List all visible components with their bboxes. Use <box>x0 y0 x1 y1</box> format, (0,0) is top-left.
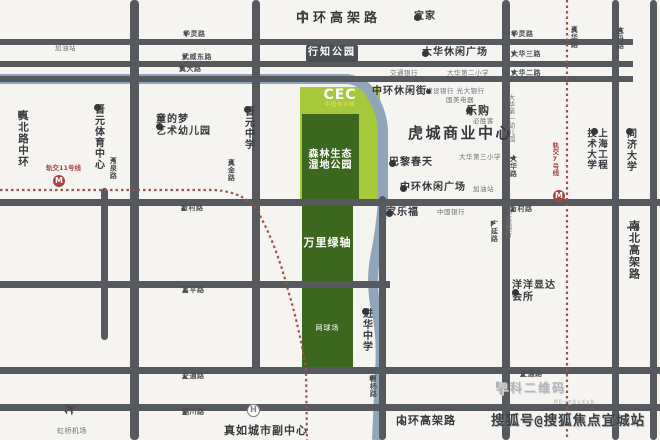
zhenda-road-label: ▼真大路 <box>179 66 202 73</box>
poi-dot <box>386 210 393 217</box>
direction-arrow: ▼ <box>179 66 185 73</box>
zhenhua-road-label: ◀真华路 <box>570 26 577 68</box>
direction-arrow: ◀ <box>228 159 234 166</box>
direction-arrow: ◀ <box>110 157 116 164</box>
metro-line-11-path <box>0 190 307 440</box>
dahua-primary-school-3: 大华第三小学 <box>459 154 501 161</box>
tongji-university: 同济大学 <box>624 128 635 180</box>
zhenjin-road-label: ◀真金路 <box>227 159 234 195</box>
dahua-2nd-road-label: ▼大华二路 <box>511 70 541 77</box>
neihuan-elevated-label: ↓内环高架路 <box>396 415 456 427</box>
direction-arrow: ◀ <box>510 155 516 162</box>
direction-arrow: ▶ <box>370 375 376 382</box>
zhonghuan-elevated-label: 中环高架路↑ <box>296 12 381 26</box>
wanquan-road-label: ◀万泉路 <box>109 157 116 193</box>
hualing-road-label-right: ▼华灵路 <box>511 31 534 38</box>
poi-dot <box>389 160 396 167</box>
fuping-road-label: ▲富平路 <box>182 287 205 294</box>
watermark-handle-line: ME—@8vXvK <box>554 400 596 406</box>
direction-arrow: ↑ <box>296 10 314 27</box>
direction-arrow: ▲ <box>181 205 187 212</box>
ccb-vert-poi: ◎建设银行 <box>504 210 511 264</box>
poi-dot <box>426 89 431 94</box>
printemps-poi: 巴黎春天 <box>389 158 433 169</box>
wanli-green-axis-label: 万里绿轴 <box>302 237 353 249</box>
gas-station-top: 加油站 <box>55 45 76 52</box>
direction-arrow: ▶ <box>18 110 27 120</box>
tesco-poi: 乐购 <box>466 105 490 117</box>
metro-layer <box>0 0 660 440</box>
poi-dot <box>94 104 101 111</box>
forest-park-label: 森林生态 湿地公园 <box>302 150 359 171</box>
metro-line-7-text: 轨交7号线 <box>551 142 558 190</box>
direction-arrow: ▼ <box>511 51 517 58</box>
zhidan-road-label: ◀志丹路 <box>616 27 623 69</box>
direction-arrow: ▼ <box>511 70 517 77</box>
ikea-poi: 宜家 <box>414 12 436 23</box>
cec-logo-subtext: 中国电子城 <box>300 103 380 108</box>
gome-poi: 国美电器 <box>446 97 474 104</box>
dahua-kindergarten-1: 大华第一幼儿园 <box>507 94 514 154</box>
poi-dot <box>414 14 421 21</box>
xingzhi-park-badge: 行知公园 <box>306 45 358 62</box>
poi-dot <box>400 185 407 192</box>
xincun-road-label-right: ▲新村路 <box>510 206 533 213</box>
direction-arrow: ▼ <box>182 54 188 61</box>
zhonghuan-leisure-plaza-poi: 中环休闲广场 <box>400 183 466 194</box>
direction-arrow: ▼ <box>183 31 189 38</box>
poi-dot <box>362 308 369 315</box>
direction-arrow: ◀ <box>571 26 577 33</box>
direction-arrow: ▶ <box>491 220 497 227</box>
poi-dot <box>422 50 429 57</box>
guangyan-road-label: ▶广延路 <box>490 220 497 262</box>
direction-arrow: ↓ <box>396 414 409 428</box>
poi-dot <box>244 106 251 113</box>
direction-arrow: ▲ <box>182 373 188 380</box>
cec-logo: CEC <box>300 88 380 103</box>
zhonghuan-leisure-street-poi: 中环休闲街 <box>372 87 427 98</box>
direction-arrow: ◎ <box>504 210 511 217</box>
tongdemeng-kindergarten: 童的梦艺术幼儿园 <box>156 114 211 138</box>
hualing-road-label-left: ▼华灵路 <box>183 31 206 38</box>
carrefour-poi: 家乐福 <box>386 208 419 219</box>
metro-line-7-icon: M <box>553 190 565 202</box>
boc-poi: 中国银行 <box>437 209 465 216</box>
dahua-primary-school-2: 大华第二小学 <box>447 70 489 77</box>
gas-station-mid: 加油站 <box>473 186 494 193</box>
direction-arrow: ◀ <box>617 27 623 34</box>
dahua-leisure-plaza-poi: 大华休闲广场 <box>422 48 488 59</box>
poi-dot <box>156 123 163 130</box>
watermark-sohu-line: 搜狐号@搜狐焦点宜城站 <box>491 414 645 428</box>
poi-dot <box>626 128 633 135</box>
hongqiao-airport: 虹桥机场 <box>57 428 87 435</box>
direction-arrow: ▼ <box>511 31 517 38</box>
direction-arrow: ▲ <box>182 409 188 416</box>
jinyuan-sports-center: 晋元体育中心 <box>92 104 103 176</box>
hucheng-business-center: 虎城商业中心 <box>408 126 513 142</box>
poi-dot <box>591 128 598 135</box>
xincun-road-label-left: ▲新村路 <box>181 205 204 212</box>
dahua-3rd-road-label: ▼大华三路 <box>511 51 541 58</box>
direction-arrow: ▲ <box>520 371 526 378</box>
yangyang-club-poi: 洋洋显达会所 <box>512 280 556 304</box>
ccb-everbright-poi: 建设银行 光大银行 <box>426 88 485 95</box>
caoyang-road-label: ▶曹杨路 <box>369 375 376 411</box>
watermark-qr-line: ▚早科二维码 <box>496 382 566 395</box>
tongchuan-road-label: ▲铜川路 <box>182 409 205 416</box>
qr-icon: ▚ <box>496 383 505 395</box>
dahua-road-label: ◀大华路 <box>509 155 516 191</box>
zhenru-subcenter: 真如城市副中心 <box>224 425 308 437</box>
sues-university: 上海工程技术大学 <box>582 128 606 172</box>
direction-arrow: → <box>626 220 641 237</box>
nanbei-elevated-label: →南北高架路 <box>628 220 640 282</box>
jinhua-middle-school: 进华中学 <box>360 308 371 362</box>
jinyuan-middle-school: 晋元中学 <box>242 106 253 170</box>
metro-line-11-icon: M <box>53 175 65 187</box>
wuwei-east-road-label: ▼武威东路 <box>182 54 212 61</box>
jiaotong-road-label-left: ▲交通路 <box>182 373 205 380</box>
location-map: CEC 中国电子城 森林生态 湿地公园 万里绿轴 网球场 轨交11号线 M 轨交… <box>0 0 660 440</box>
tennis-court-label: 网球场 <box>302 325 353 332</box>
direction-arrow: ▲ <box>182 287 188 294</box>
bocom-poi: 交通银行 <box>390 70 418 77</box>
poi-dot <box>512 289 519 296</box>
metro-line-11-text: 轨交11号线 <box>46 165 81 172</box>
zhenbei-middle-ring-label: ▶真北路中环 <box>17 110 28 196</box>
jiaotong-road-label-right: ▲交通路 <box>520 371 543 378</box>
